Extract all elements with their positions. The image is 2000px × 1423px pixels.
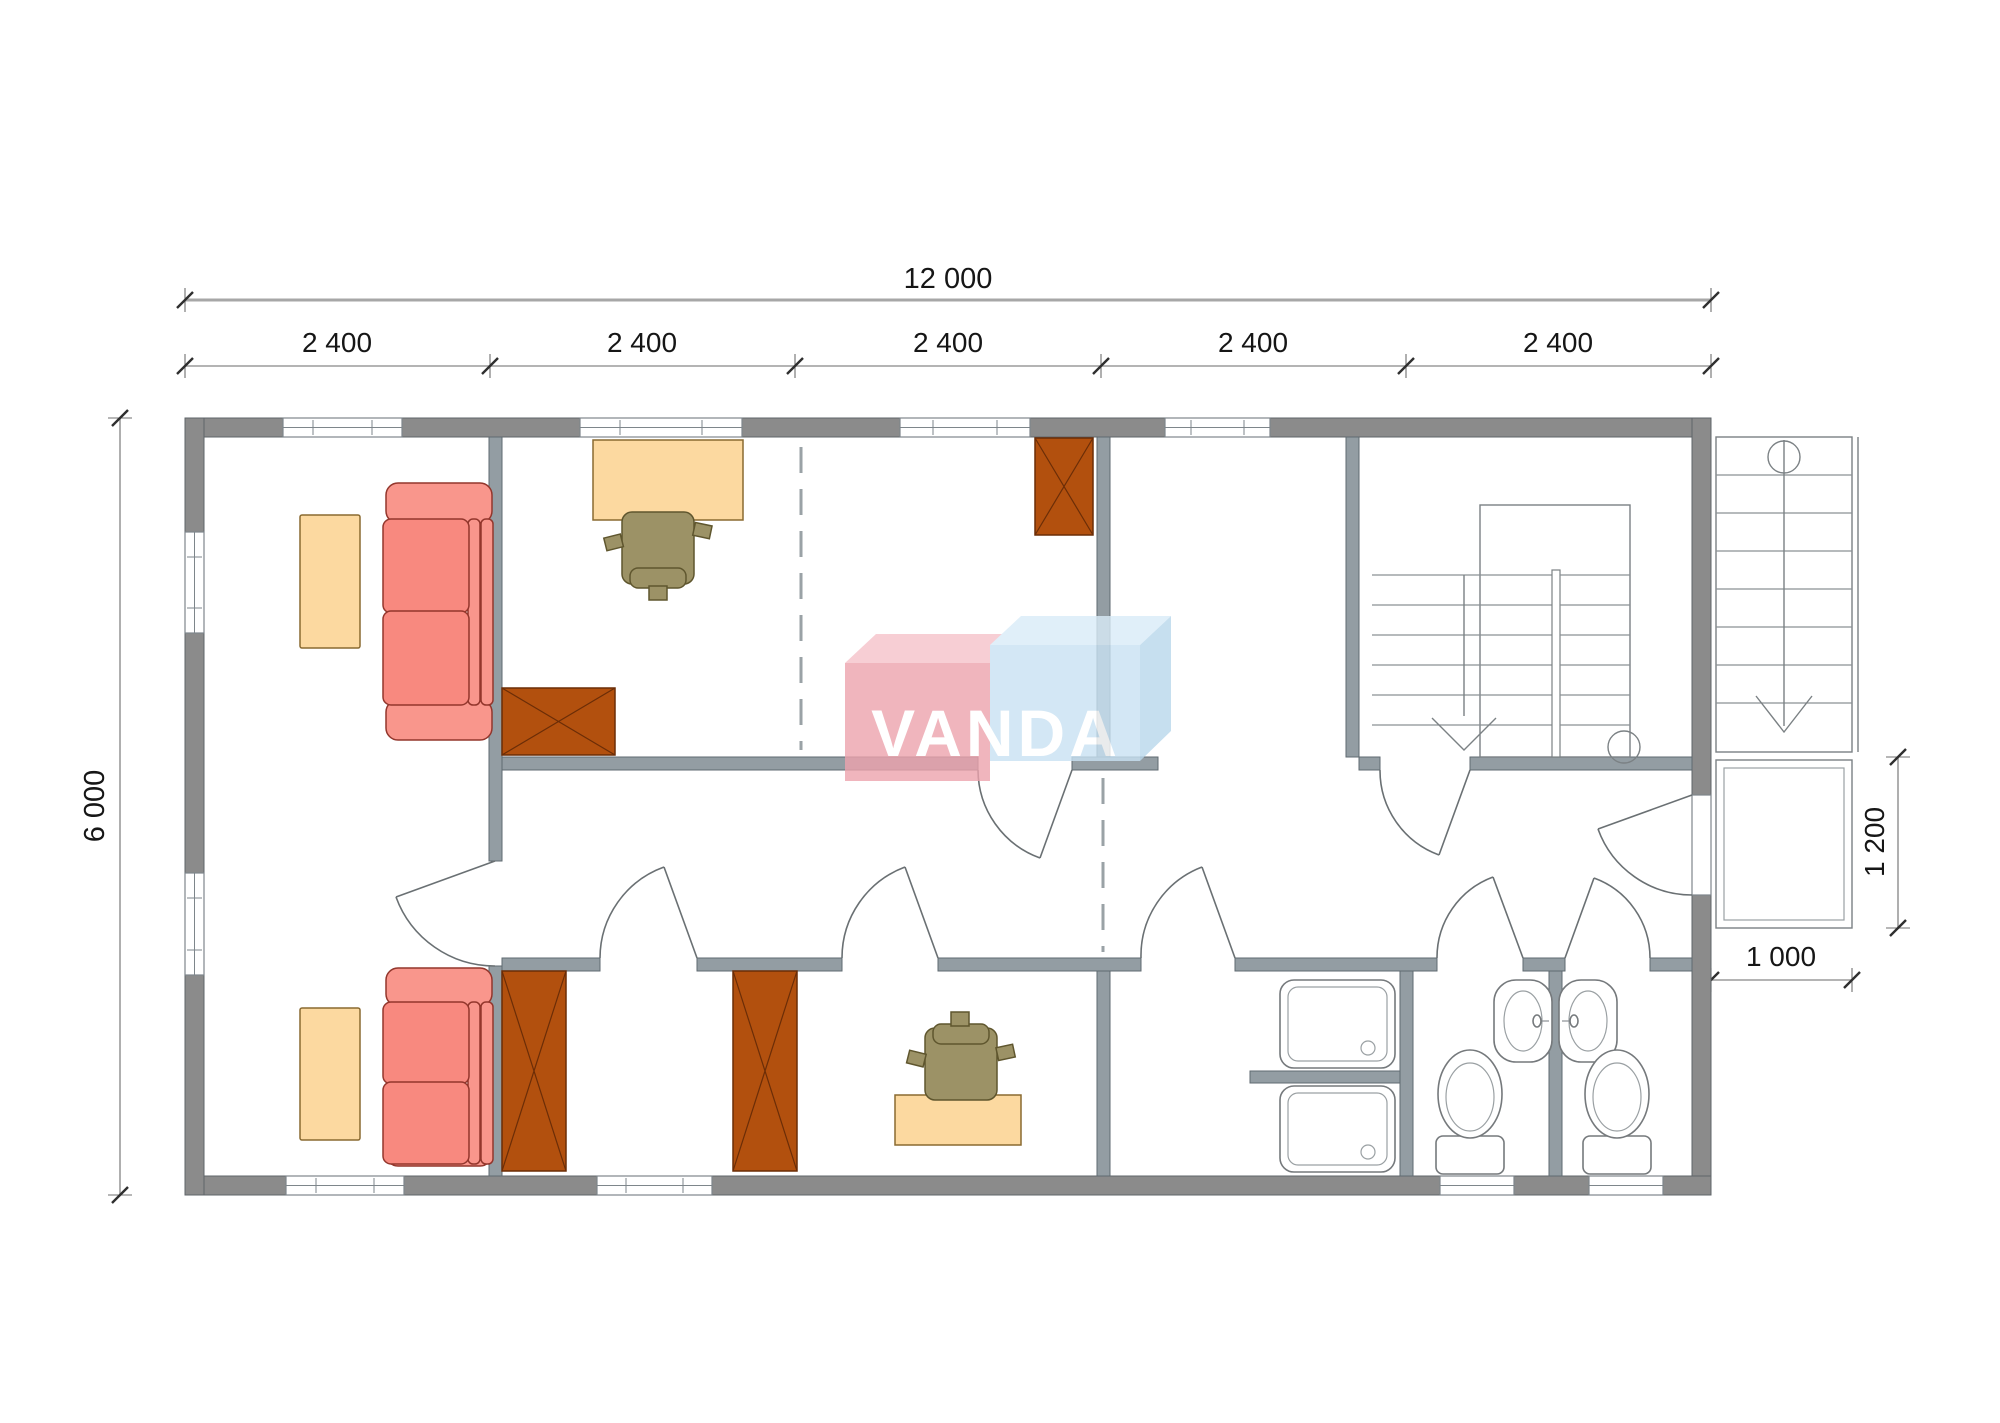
wall-corridor-bottom-b xyxy=(697,958,842,971)
desk xyxy=(593,440,743,520)
wardrobe xyxy=(502,688,615,755)
door-swing-stair-hall xyxy=(1380,770,1470,855)
height-label: 6 000 xyxy=(79,770,111,843)
door-swing-living xyxy=(396,861,495,966)
door-swing-wc1 xyxy=(1437,877,1523,958)
stair-divider xyxy=(1552,570,1560,757)
wall-bed2-shower xyxy=(1097,971,1110,1176)
window xyxy=(900,418,1030,437)
office-chair xyxy=(604,512,712,600)
shower-tray xyxy=(1280,980,1395,1068)
wall-corridor-bottom-a xyxy=(502,958,600,971)
wall-stair-bottom-right xyxy=(1470,757,1692,770)
window xyxy=(283,418,402,437)
exterior-staircase xyxy=(1716,437,1858,752)
window xyxy=(1589,1176,1663,1195)
wardrobe xyxy=(733,971,797,1171)
total-width-label: 12 000 xyxy=(904,263,993,295)
window xyxy=(286,1176,404,1195)
stair-direction-arrow xyxy=(1432,718,1496,750)
coffee-table xyxy=(300,1008,360,1140)
bay-label-4: 2 400 xyxy=(1218,327,1288,358)
dimension-porch-height: 1 200 xyxy=(1859,749,1910,936)
porch xyxy=(1716,760,1852,928)
window xyxy=(185,532,204,633)
wall-right-lower xyxy=(1692,895,1711,1176)
door-swing-wc2 xyxy=(1565,878,1650,958)
wall-corridor-bottom-e xyxy=(1523,958,1565,971)
watermark-text: VANDA xyxy=(871,696,1121,770)
interior-staircase xyxy=(1372,505,1640,763)
porch-width-label: 1 000 xyxy=(1746,941,1816,972)
brand-watermark: VANDA xyxy=(845,616,1171,781)
wall-stair-bottom-left xyxy=(1359,757,1380,770)
dimension-porch-width: 1 000 xyxy=(1703,941,1860,992)
window xyxy=(597,1176,712,1195)
wash-basin xyxy=(1494,980,1552,1062)
window xyxy=(1440,1176,1514,1195)
entrance-door-opening xyxy=(1692,795,1711,895)
window xyxy=(185,873,204,975)
wardrobe xyxy=(502,971,566,1171)
wall-corridor-bottom-d xyxy=(1235,958,1437,971)
toilet xyxy=(1583,1050,1651,1174)
window xyxy=(580,418,742,437)
bay-label-1: 2 400 xyxy=(302,327,372,358)
dimension-bays: 2 400 2 400 2 400 2 400 2 400 xyxy=(177,327,1719,378)
floor-plan-page: 12 000 2 400 2 400 2 400 2 400 2 400 6 0… xyxy=(0,0,2000,1423)
floor-plan-canvas: 12 000 2 400 2 400 2 400 2 400 2 400 6 0… xyxy=(0,0,2000,1423)
wardrobe xyxy=(1035,438,1093,535)
coffee-table xyxy=(300,515,360,648)
wall-shower-wc1 xyxy=(1400,971,1413,1176)
desk xyxy=(895,1095,1021,1145)
sofa xyxy=(383,968,493,1166)
dimension-height: 6 000 xyxy=(79,410,132,1203)
wall-corridor-bottom-c xyxy=(938,958,1141,971)
wall-corridor-bottom-f xyxy=(1650,958,1692,971)
door-swing-bedroom2 xyxy=(842,867,938,958)
shower-tray xyxy=(1280,1086,1395,1172)
wall-room4-stair xyxy=(1346,437,1359,757)
toilet xyxy=(1436,1050,1504,1174)
porch-height-label: 1 200 xyxy=(1859,807,1890,877)
wash-basin xyxy=(1559,980,1617,1062)
bay-label-5: 2 400 xyxy=(1523,327,1593,358)
bay-label-2: 2 400 xyxy=(607,327,677,358)
door-swing-bedroom1 xyxy=(600,867,697,958)
door-swing-shower xyxy=(1141,867,1235,958)
door-swing-office-corridor xyxy=(978,770,1072,858)
wall-right-upper xyxy=(1692,418,1711,795)
window xyxy=(1165,418,1270,437)
doors xyxy=(396,770,1692,966)
office-chair xyxy=(907,1012,1016,1100)
sofa xyxy=(383,483,493,740)
wall-shower-stub xyxy=(1250,1071,1400,1083)
bay-label-3: 2 400 xyxy=(913,327,983,358)
door-swing-entrance xyxy=(1598,795,1692,895)
dimension-total-width: 12 000 xyxy=(177,263,1719,312)
